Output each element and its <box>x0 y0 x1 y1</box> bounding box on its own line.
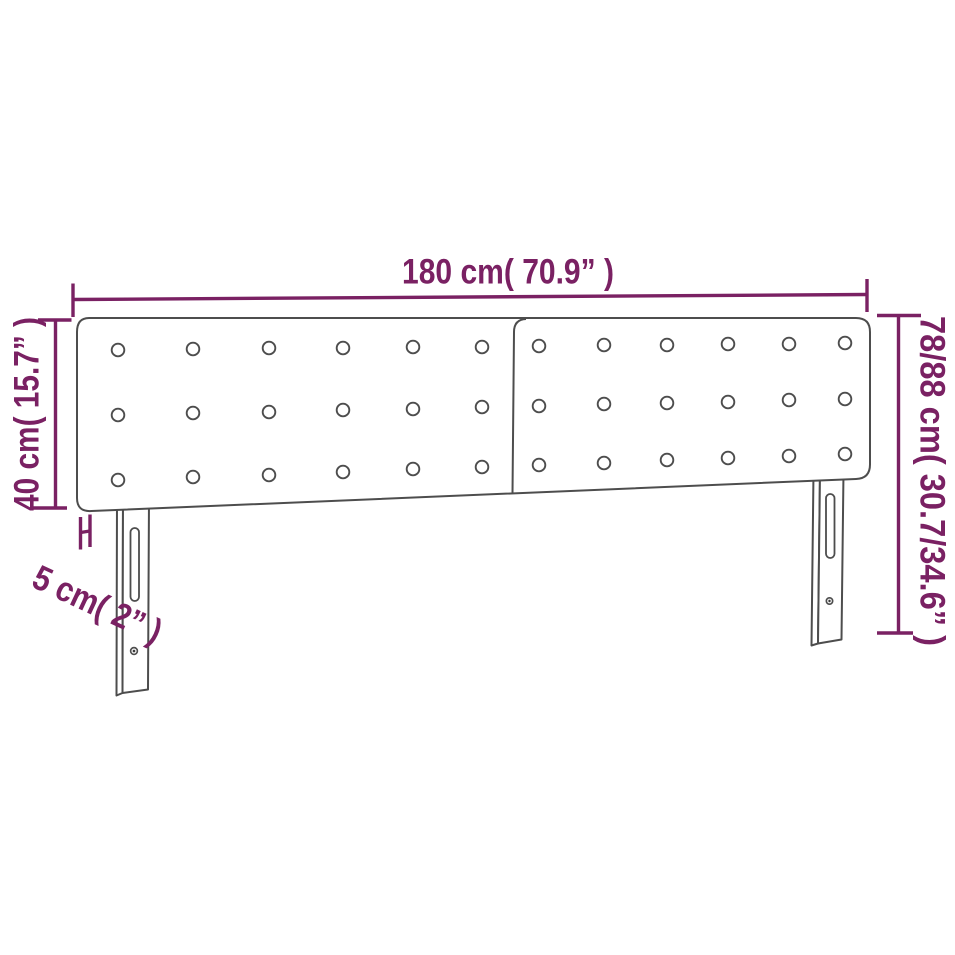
tufting-button <box>598 339 611 352</box>
tufting-button <box>533 340 546 353</box>
tufting-button <box>722 396 735 409</box>
headboard-dimension-diagram: 180 cm( 70.9” ) 40 cm( 15.7” ) 78/88 cm(… <box>0 0 955 955</box>
tufting-button <box>187 407 200 420</box>
depth-dimension-marker <box>81 515 91 550</box>
tufting-button <box>839 448 852 461</box>
tufting-button <box>112 409 125 422</box>
right-height-dimension-label: 78/88 cm( 30.7/34.6” ) <box>913 316 952 646</box>
tufting-button <box>783 338 796 351</box>
tufting-button <box>476 341 489 354</box>
left-leg-screw-center <box>133 650 136 653</box>
tufting-button <box>476 401 489 414</box>
tufting-button <box>337 342 350 355</box>
tufting-button <box>661 397 674 410</box>
tufting-button <box>533 400 546 413</box>
tufting-button <box>598 457 611 470</box>
left-height-dimension-label: 40 cm( 15.7” ) <box>8 317 47 511</box>
tufting-button <box>337 466 350 479</box>
tufting-button <box>263 406 276 419</box>
tufting-button <box>783 450 796 463</box>
tufting-button <box>407 341 420 354</box>
left-leg-slot <box>131 528 140 601</box>
tufting-button <box>661 339 674 352</box>
furniture-outline <box>77 318 870 696</box>
tufting-button <box>407 463 420 476</box>
tufting-button <box>407 403 420 416</box>
tufting-button <box>187 343 200 356</box>
tufting-button <box>112 344 125 357</box>
tufting-button <box>783 394 796 407</box>
tufting-button <box>112 474 125 487</box>
width-dimension-label: 180 cm( 70.9” ) <box>402 253 614 292</box>
width-dimension-line <box>73 295 867 300</box>
tufting-button <box>187 471 200 484</box>
tufting-button <box>839 337 852 350</box>
diagram-canvas: 180 cm( 70.9” ) 40 cm( 15.7” ) 78/88 cm(… <box>0 0 955 955</box>
tufting-button <box>722 452 735 465</box>
tufting-button <box>263 469 276 482</box>
tufting-button <box>722 338 735 351</box>
tufting-button <box>533 459 546 472</box>
right-leg <box>812 472 844 646</box>
tufting-button <box>263 342 276 355</box>
tufting-button <box>598 398 611 411</box>
tufting-button <box>661 454 674 467</box>
tufting-button <box>476 461 489 474</box>
right-leg-screw-center <box>828 600 830 602</box>
tufting-button <box>337 404 350 417</box>
tufting-button <box>839 393 852 406</box>
depth-dimension-line <box>81 531 91 533</box>
right-leg-slot <box>826 494 835 558</box>
